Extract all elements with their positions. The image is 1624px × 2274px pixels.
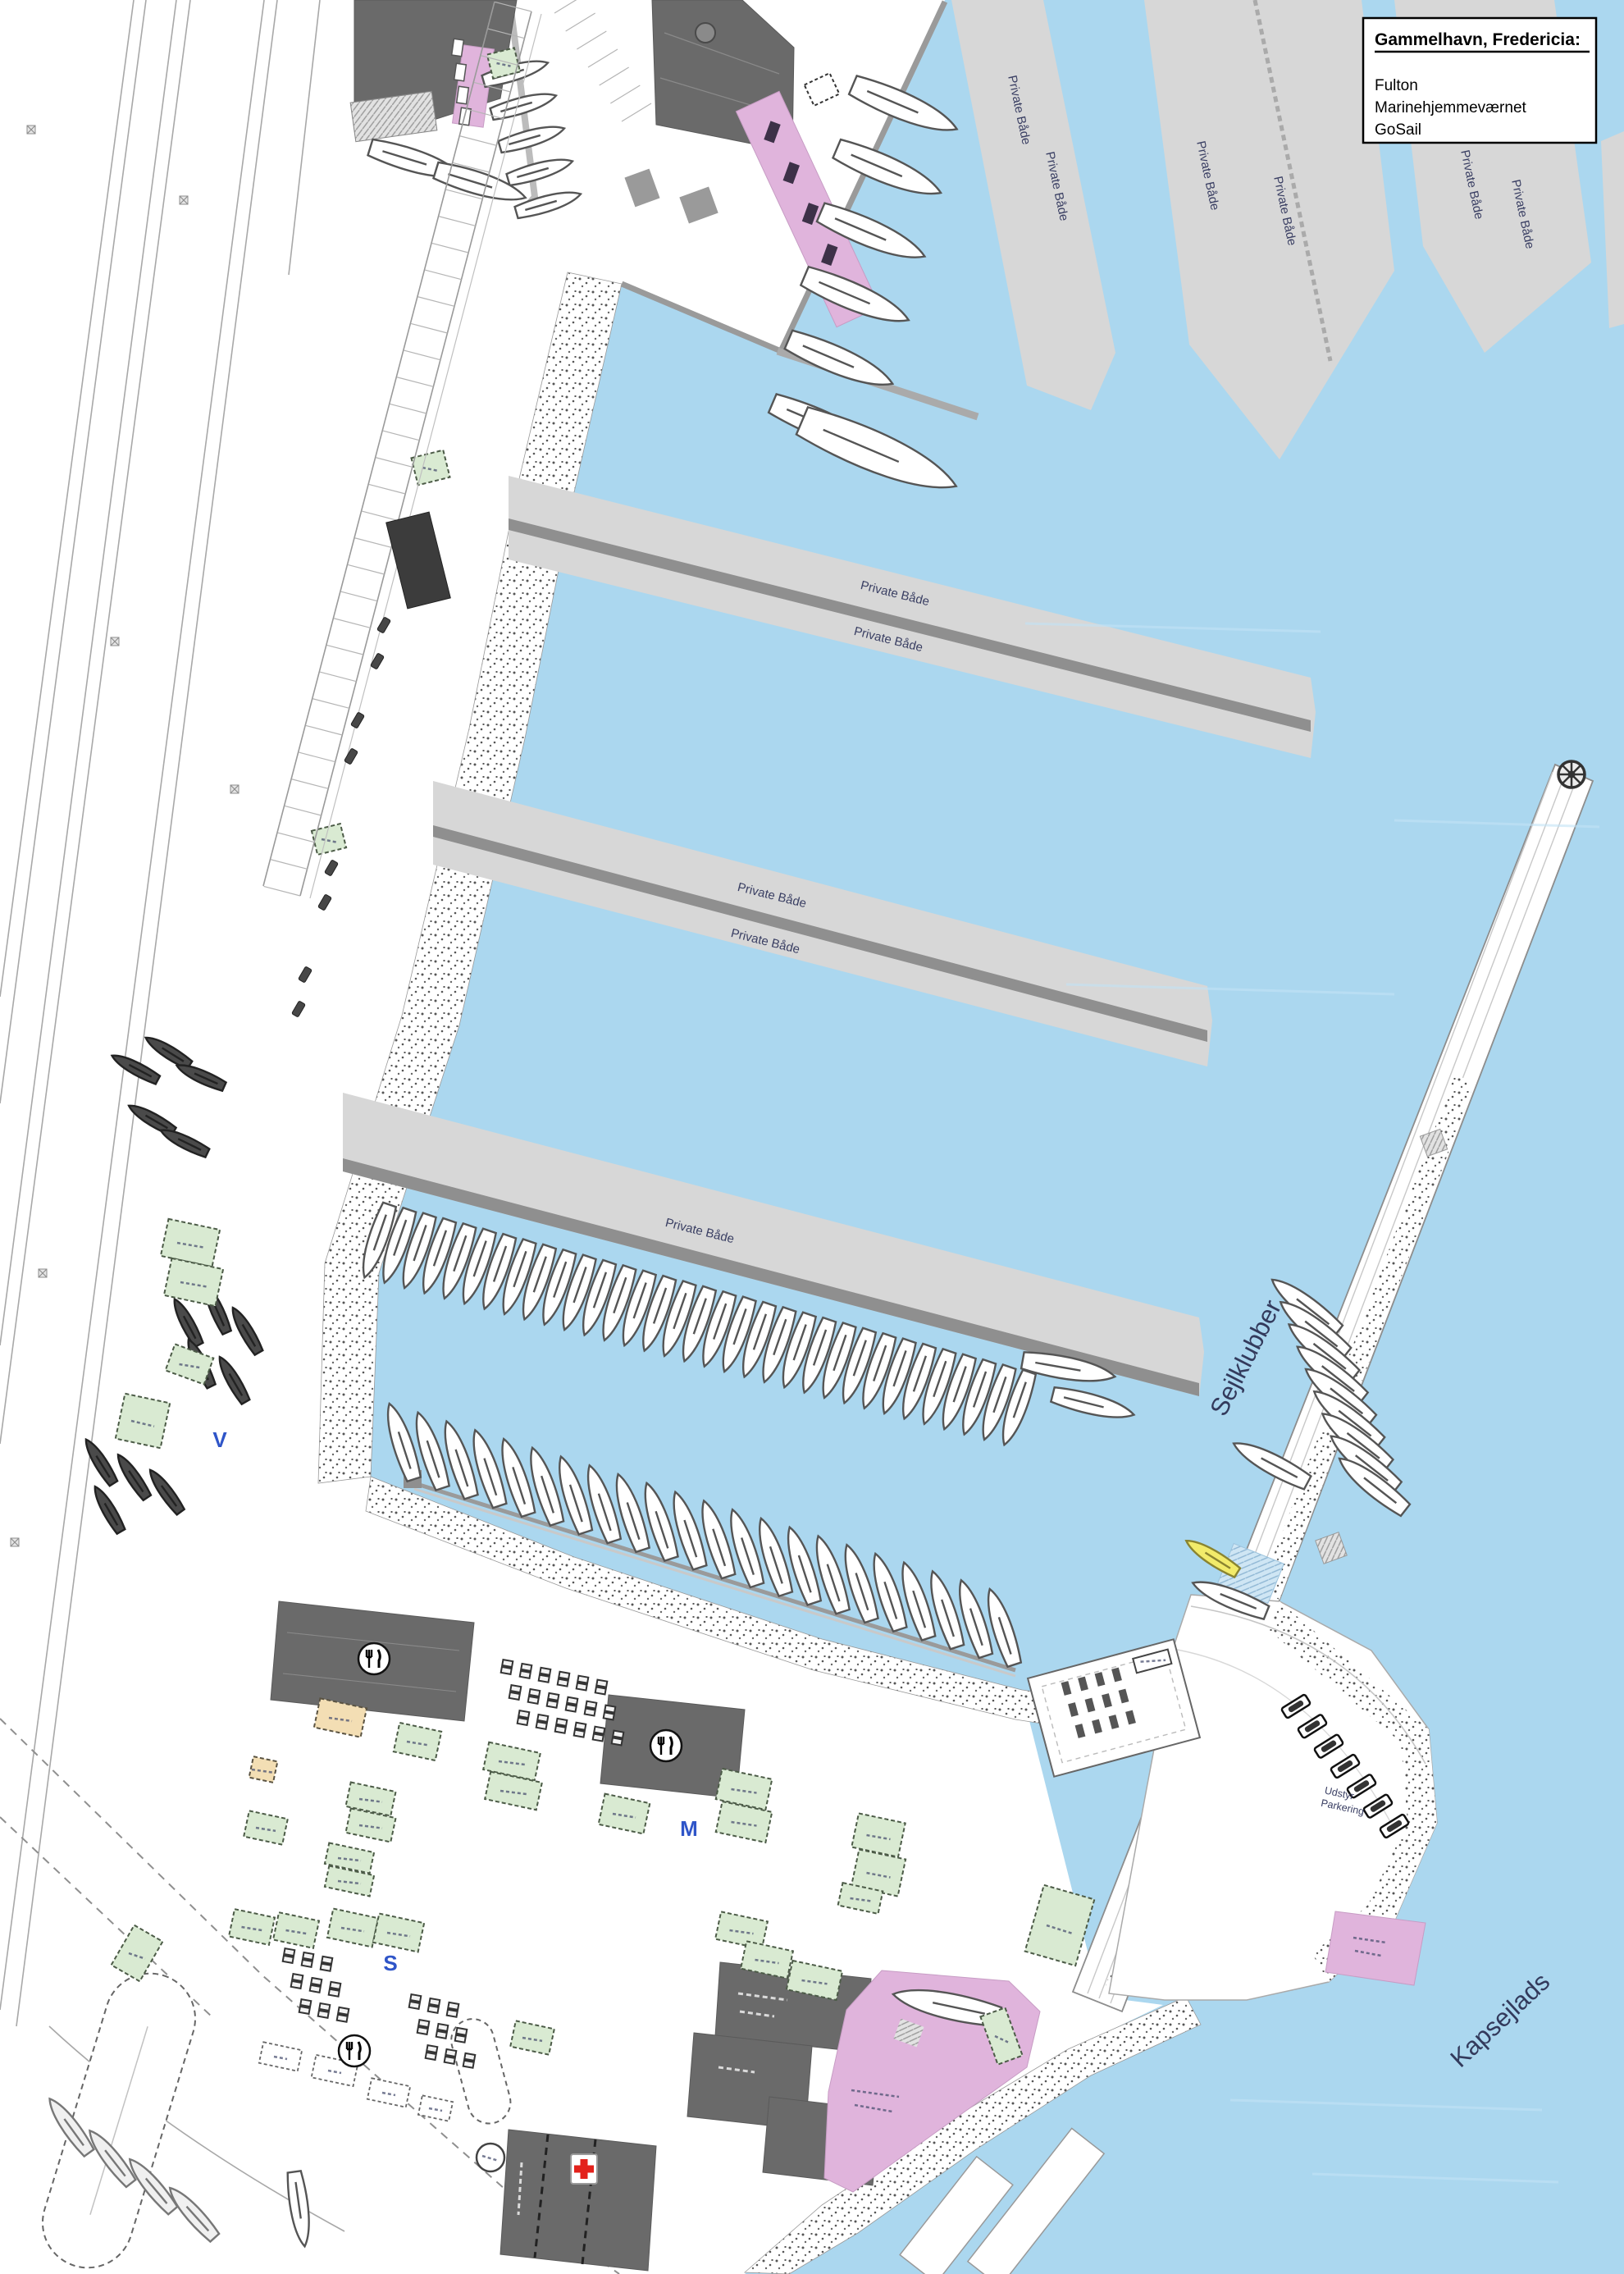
- zone-label-v: V: [212, 1427, 227, 1452]
- market-stall-icon: [428, 1998, 440, 2013]
- market-stall-icon: [302, 1952, 314, 1967]
- market-stall-icon: [283, 1948, 295, 1963]
- market-stall-icon: [445, 2049, 457, 2064]
- market-stall-icon: [536, 1715, 549, 1729]
- market-stall-icon: [455, 2028, 468, 2043]
- road-marker-icon: [39, 1269, 47, 1277]
- market-stall-icon: [329, 1982, 341, 1997]
- market-stall-icon: [520, 1664, 532, 1678]
- legend-item: Marinehjemmeværnet: [1375, 99, 1527, 116]
- market-stall-icon: [409, 1994, 422, 2009]
- green-building: [116, 1394, 170, 1448]
- market-stall-icon: [463, 2053, 476, 2068]
- market-stall-icon: [509, 1685, 522, 1700]
- market-stall-icon: [436, 2024, 449, 2039]
- road-marker-icon: [180, 196, 188, 204]
- restaurant-icon: [650, 1730, 682, 1761]
- market-stall-icon: [417, 2020, 430, 2034]
- market-stall-icon: [291, 1974, 303, 1989]
- zone-label-s: S: [383, 1951, 397, 1975]
- market-stall-icon: [612, 1731, 624, 1746]
- road-marker-icon: [27, 126, 35, 134]
- road-marker-icon: [11, 1538, 19, 1546]
- zone-label-m: M: [680, 1816, 698, 1841]
- market-stall-icon: [577, 1676, 589, 1691]
- road-marker-icon: [111, 637, 119, 646]
- market-stall-icon: [426, 2045, 438, 2060]
- restaurant-icon: [339, 2035, 370, 2066]
- circular-structure-icon: [696, 23, 715, 43]
- first-aid-building: [500, 2130, 656, 2271]
- first-aid-icon: [571, 2154, 597, 2184]
- restaurant-icon: [358, 1643, 390, 1674]
- market-stall-icon: [518, 1710, 530, 1725]
- map-canvas: Private Både Private Både Private Både P…: [0, 0, 1624, 2274]
- legend: Gammelhavn, Fredericia: Fulton Marinehje…: [1363, 18, 1596, 143]
- market-stall-icon: [299, 1999, 312, 2014]
- ship-wheel-icon: [1558, 761, 1585, 788]
- market-stall-icon: [310, 1978, 322, 1993]
- market-stall-icon: [558, 1672, 570, 1687]
- market-stall-icon: [566, 1697, 578, 1712]
- legend-item: Fulton: [1375, 77, 1418, 94]
- market-stall-icon: [447, 2002, 459, 2017]
- market-stall-icon: [321, 1957, 333, 1971]
- market-stall-icon: [574, 1723, 586, 1737]
- market-stall-icon: [555, 1719, 568, 1733]
- legend-item: GoSail: [1375, 121, 1421, 139]
- pink-area-spit: [1325, 1911, 1426, 1985]
- market-stall-icon: [539, 1668, 551, 1683]
- market-stall-icon: [501, 1660, 513, 1674]
- market-stall-icon: [593, 1727, 605, 1742]
- market-stall-icon: [585, 1701, 597, 1716]
- legend-title: Gammelhavn, Fredericia:: [1375, 30, 1581, 49]
- road-marker-icon: [230, 785, 239, 793]
- market-stall-icon: [595, 1680, 608, 1695]
- market-stall-icon: [318, 2003, 331, 2018]
- market-stall-icon: [604, 1705, 616, 1720]
- market-stall-icon: [337, 2007, 349, 2022]
- market-stall-icon: [528, 1689, 541, 1704]
- market-stall-icon: [547, 1693, 559, 1708]
- harbor-map: Private Både Private Både Private Både P…: [0, 0, 1624, 2274]
